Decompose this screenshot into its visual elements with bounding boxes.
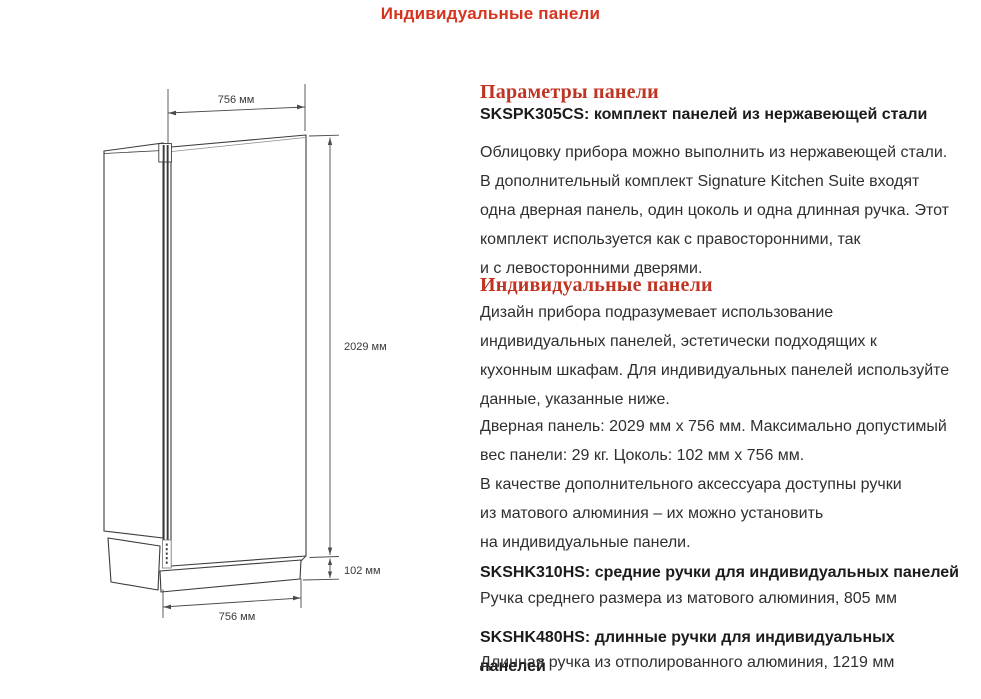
custom-panels-body-1: Дизайн прибора подразумевает использован… (480, 298, 960, 414)
panel-params-body: Облицовку прибора можно выполнить из нер… (480, 138, 960, 283)
dim-label-top-width: 756 мм (218, 94, 255, 106)
hinge-top-bracket (159, 144, 172, 163)
custom-panels-body-3: В качестве дополнительного аксессуара до… (480, 470, 960, 557)
handle-desc-skshk310hs: Ручка среднего размера из матового алюми… (480, 584, 960, 613)
door-panel (171, 135, 306, 566)
section-heading-custom-panels: Индивидуальные панели (480, 273, 713, 297)
handle-desc-skshk480hs: Длинная ручка из отполированного алюмини… (480, 648, 960, 677)
custom-panels-body-2: Дверная панель: 2029 мм x 756 мм. Максим… (480, 412, 960, 470)
dim-label-bottom-width: 756 мм (219, 611, 256, 623)
dim-label-plinth-height: 102 мм (344, 565, 381, 577)
dim-label-height: 2029 мм (344, 341, 387, 353)
spec-page: Индивидуальные панели (0, 0, 981, 699)
handle-heading-skshk310hs: SKSHK310HS: средние ручки для индивидуал… (480, 558, 960, 587)
side-panel (104, 143, 163, 538)
plinth-left-face (108, 538, 160, 590)
model-subheading-skspk305cs: SKSPK305CS: комплект панелей из нержавею… (480, 100, 960, 129)
